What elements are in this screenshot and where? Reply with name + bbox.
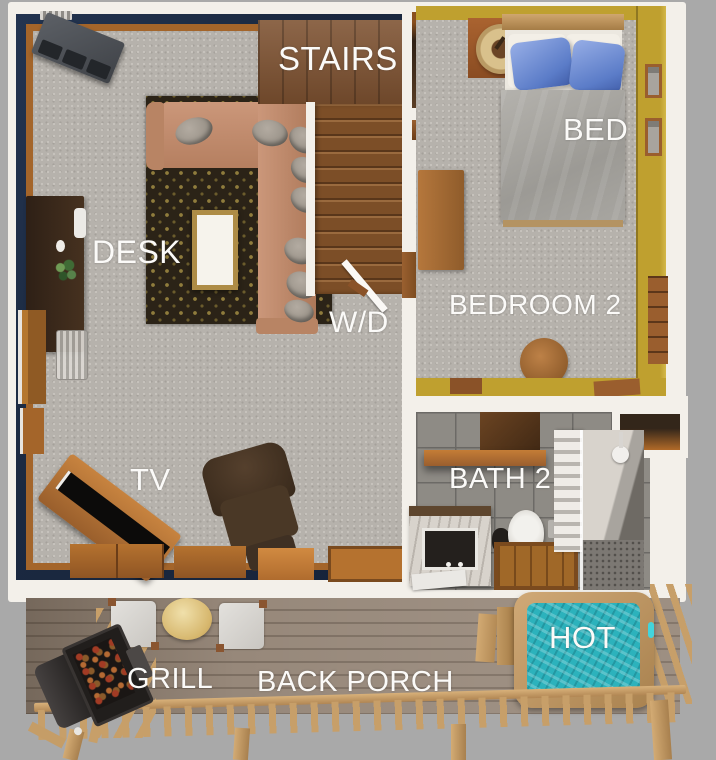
label-stairs: STAIRS bbox=[278, 40, 398, 78]
bed-headboard bbox=[502, 14, 624, 30]
chair-leg bbox=[151, 642, 159, 650]
desk-plant bbox=[52, 258, 80, 282]
side-door bbox=[18, 310, 46, 404]
media-bench bbox=[258, 548, 314, 580]
label-desk: DESK bbox=[92, 234, 181, 271]
label-bath-2: BATH 2 bbox=[449, 463, 551, 496]
coffee-table bbox=[192, 210, 238, 290]
window bbox=[645, 118, 662, 156]
dresser-drawer bbox=[62, 49, 88, 70]
wood-bench bbox=[328, 546, 410, 582]
shower-floor bbox=[582, 540, 644, 590]
wire-basket bbox=[56, 330, 88, 380]
dresser-drawer bbox=[38, 39, 64, 60]
hot-tub-light bbox=[648, 622, 654, 638]
label-tv: TV bbox=[130, 462, 171, 498]
bed-pillow-blue bbox=[509, 37, 574, 92]
porch-dining-table bbox=[162, 598, 212, 640]
bed-duvet bbox=[501, 90, 625, 222]
lamp-switch bbox=[494, 36, 505, 50]
label-bedroom-2: BEDROOM 2 bbox=[449, 289, 622, 321]
railing-post bbox=[233, 728, 250, 760]
bath-shelf-upright bbox=[480, 412, 540, 454]
label-back-porch: BACK PORCH bbox=[257, 666, 454, 699]
label-hot-tub: HOT bbox=[549, 620, 616, 656]
side-door-lower bbox=[20, 408, 44, 454]
desk-cup bbox=[56, 240, 65, 252]
porch-chair bbox=[219, 603, 264, 649]
stair-treads bbox=[314, 104, 412, 294]
stair-wall bbox=[306, 102, 315, 296]
bed-footboard bbox=[503, 220, 623, 227]
hot-tub-step bbox=[475, 613, 497, 662]
wall-wood-piece bbox=[593, 378, 640, 397]
grill-knob bbox=[73, 726, 84, 737]
sofa-armrest bbox=[146, 102, 164, 170]
chair-leg bbox=[216, 644, 224, 652]
media-bench bbox=[174, 546, 246, 578]
media-bench bbox=[70, 544, 164, 578]
chair-leg bbox=[108, 598, 116, 606]
label-grill: GRILL bbox=[127, 663, 213, 696]
bedroom-dresser bbox=[418, 170, 464, 270]
floor-plan-scene: STAIRS BED DESK W/D BEDROOM 2 BATH 2 TV … bbox=[0, 0, 716, 760]
bed-pillow-blue bbox=[568, 39, 626, 95]
chair-leg bbox=[259, 600, 267, 608]
window bbox=[645, 64, 662, 98]
shower-glass bbox=[580, 430, 583, 590]
label-washer-dryer: W/D bbox=[329, 306, 389, 340]
shower-head bbox=[612, 446, 629, 463]
faucet-handle bbox=[458, 562, 463, 567]
railing-post bbox=[451, 724, 466, 760]
towel-rack bbox=[554, 430, 582, 552]
bookshelf bbox=[648, 276, 668, 364]
desk-chair bbox=[74, 208, 86, 238]
faucet-handle bbox=[446, 562, 451, 567]
shower-pipe bbox=[619, 432, 623, 448]
dresser-drawer bbox=[86, 59, 112, 80]
label-bed: BED bbox=[563, 112, 628, 148]
wall-wood-piece bbox=[450, 378, 482, 394]
